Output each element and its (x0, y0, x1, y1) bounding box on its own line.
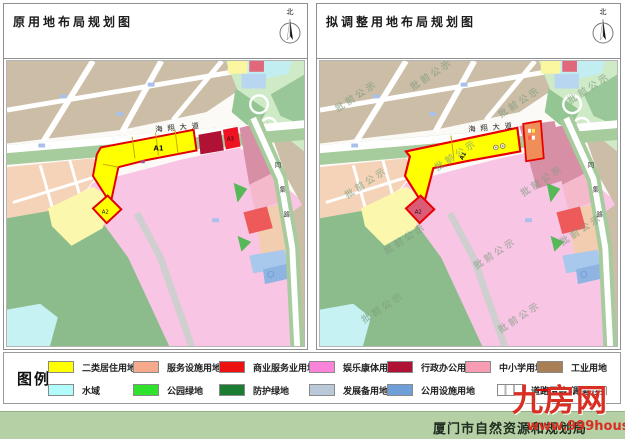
legend-item-park-green: 公园绿地 (133, 383, 203, 397)
legend-item-admin-office: 行政办公用地 (387, 360, 475, 374)
legend-item-commercial: 商业服务业用地 (219, 360, 316, 374)
legend-swatch (309, 361, 335, 373)
page-title: 拟调整用地布局规划图 (326, 13, 476, 30)
north-label: 北 (600, 8, 607, 16)
legend-item-service-facility: 服务设施用地 (133, 360, 221, 374)
svg-text:同: 同 (588, 161, 594, 169)
legend-swatch (537, 361, 563, 373)
north-label: 北 (287, 8, 294, 16)
legend-item-utilities: 公用设施用地 (387, 383, 475, 397)
legend-item-school: 中小学用地 (465, 360, 544, 374)
legend-swatch (387, 361, 413, 373)
plot-admin-office (198, 131, 223, 155)
svg-text:路: 路 (283, 209, 290, 218)
legend-swatch (48, 361, 74, 373)
planning-screenshot: 原用地布局规划图 北 (0, 0, 625, 440)
plot-a1-label: A1 (154, 144, 164, 152)
legend-item-residential: 二类居住用地 (48, 360, 136, 374)
legend-swatch (387, 384, 413, 396)
legend-swatch (465, 361, 491, 373)
legend-item-protective-green: 防护绿地 (219, 383, 289, 397)
svg-text:同: 同 (275, 161, 281, 169)
legend-swatch (219, 384, 245, 396)
page-title: 原用地布局规划图 (13, 13, 133, 30)
legend-item-reserve-land: 发展备用地 (309, 383, 388, 397)
legend-swatch (309, 384, 335, 396)
svg-text:集: 集 (593, 185, 600, 194)
original-map: A1 A3 A2 海翔大道 同 集 路 (6, 60, 305, 347)
svg-text:集: 集 (280, 185, 287, 194)
plot-small-adjusted (523, 121, 544, 161)
plot-a2-label: A2 (102, 209, 109, 215)
legend-item-industrial: 工业用地 (537, 360, 607, 374)
north-arrow: 北 (592, 6, 614, 58)
brand-watermark: 九房网 (512, 386, 608, 417)
legend-swatch (219, 361, 245, 373)
legend-swatch (48, 384, 74, 396)
north-arrow: 北 (279, 6, 301, 58)
panel-header: 原用地布局规划图 北 (4, 4, 307, 59)
brand-url-watermark: www.999house.com (527, 420, 625, 433)
original-plan-panel: 原用地布局规划图 北 (3, 3, 308, 350)
plot-a2-label: A2 (415, 209, 422, 215)
legend-swatch (133, 384, 159, 396)
legend-item-recreation: 娱乐康体用地 (309, 360, 397, 374)
plot-a3-label: A3 (227, 137, 234, 143)
plot-marker (141, 160, 145, 163)
adjusted-plan-panel: 拟调整用地布局规划图 北 (316, 3, 621, 350)
legend-swatch (133, 361, 159, 373)
adjusted-map: A1 A2 海翔大道 同 集 路 批前公示 批前公示 批前公示 批前公示 批前公… (319, 60, 618, 347)
legend-item-water: 水域 (48, 383, 100, 397)
base-map (7, 61, 304, 346)
legend-title: 图例 (17, 368, 51, 389)
panel-header: 拟调整用地布局规划图 北 (317, 4, 620, 59)
